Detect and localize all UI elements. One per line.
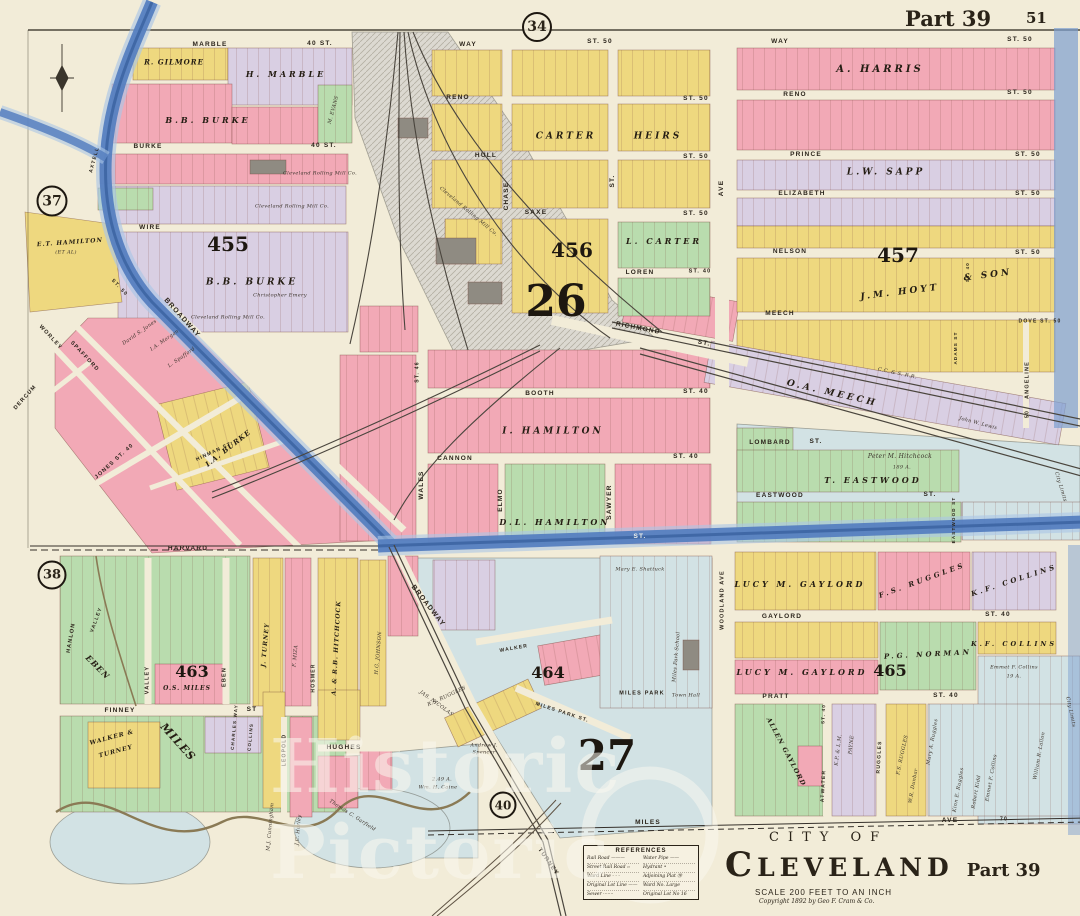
map-block — [618, 50, 710, 96]
map-block — [737, 100, 1055, 150]
references-entry: Rail Road ——— — [587, 855, 639, 864]
map-block — [360, 306, 418, 352]
header-part-label: Part 39 — [905, 6, 991, 31]
map-block — [205, 717, 261, 753]
adjoining-plat-number: 38 — [38, 561, 67, 590]
map-block — [928, 704, 1080, 816]
map-block — [737, 160, 1055, 190]
references-entry: Adjoining Plat ⑲ — [643, 873, 695, 882]
map-block — [735, 660, 878, 694]
map-block — [618, 160, 710, 208]
map-block — [50, 800, 210, 884]
map-block — [432, 160, 502, 208]
map-block — [432, 50, 502, 96]
map-block — [512, 160, 608, 208]
copyright-line: Copyright 1892 by Geo F. Cram & Co. — [759, 898, 1041, 905]
map-block — [155, 664, 223, 704]
map-block — [253, 558, 283, 706]
map-block — [832, 704, 876, 816]
map-block — [318, 690, 360, 740]
map-block — [737, 48, 1055, 90]
map-block — [360, 750, 392, 790]
references-entry: Street Rail Road ⸗⸗ — [587, 864, 639, 873]
map-block — [112, 84, 232, 143]
map-block — [735, 622, 878, 658]
references-left-column: Rail Road ———Street Rail Road ⸗⸗Ward Lin… — [587, 855, 639, 900]
references-entry: Ward No. Large — [643, 882, 695, 891]
map-canvas — [0, 0, 1080, 916]
references-entry: Sewer ······· — [587, 891, 639, 900]
map-block — [432, 104, 502, 151]
references-title: REFERENCES — [587, 848, 695, 854]
map-block — [250, 160, 286, 174]
adjoining-plat-number: 37 — [37, 186, 68, 217]
references-entry: Water Pipe —— — [643, 855, 695, 864]
map-block — [232, 107, 318, 144]
map-block — [398, 118, 428, 138]
atlas-page: MARBLE40 ST.WAYST. 50WAYST. 50RENOST. 50… — [0, 0, 1080, 916]
map-block — [285, 558, 311, 706]
map-block — [618, 222, 710, 268]
map-block — [737, 450, 959, 492]
map-block — [468, 282, 502, 304]
title-block: CITY OF CLEVELAND Part 39 SCALE 200 FEET… — [725, 830, 1041, 905]
map-block — [798, 746, 822, 786]
map-block — [318, 558, 358, 706]
map-block — [290, 717, 312, 817]
map-block — [972, 552, 1056, 610]
map-block — [618, 278, 710, 316]
map-block — [737, 198, 1055, 226]
map-block — [318, 85, 352, 143]
references-legend: REFERENCES Rail Road ———Street Rail Road… — [583, 845, 699, 900]
references-entry: Original Lot No 16 — [643, 891, 695, 900]
references-entry: Hydrant • — [643, 864, 695, 873]
adjoining-plat-number: 34 — [522, 12, 552, 42]
map-block — [118, 232, 348, 332]
title-part: Part 39 — [967, 860, 1041, 881]
map-block — [512, 50, 608, 96]
map-block — [428, 464, 498, 544]
map-block — [360, 560, 386, 706]
map-block — [735, 552, 876, 610]
references-entry: Original Lot Line —— — [587, 882, 639, 891]
map-block — [133, 48, 228, 80]
map-block — [512, 104, 608, 151]
map-block — [978, 622, 1056, 654]
page-number: 51 — [1026, 9, 1047, 27]
map-block — [512, 219, 608, 313]
map-block — [433, 560, 495, 630]
adjoining-plat-number: 40 — [490, 792, 517, 819]
map-block — [618, 104, 710, 151]
map-scale: SCALE 200 FEET TO AN INCH — [755, 888, 1041, 897]
map-block — [683, 640, 699, 670]
references-entry: Ward Line ‐ ‐ ‐ — [587, 873, 639, 882]
map-block — [737, 226, 1055, 248]
map-block — [878, 552, 970, 610]
references-right-column: Water Pipe ——Hydrant •Adjoining Plat ⑲Wa… — [643, 855, 695, 900]
map-block — [737, 258, 1055, 312]
map-block — [886, 704, 926, 816]
map-block — [88, 722, 160, 788]
title-cleveland: CLEVELAND — [725, 845, 954, 885]
map-block — [880, 622, 976, 690]
title-city-of: CITY OF — [769, 830, 1041, 845]
map-block — [100, 154, 348, 184]
map-block — [600, 556, 712, 708]
